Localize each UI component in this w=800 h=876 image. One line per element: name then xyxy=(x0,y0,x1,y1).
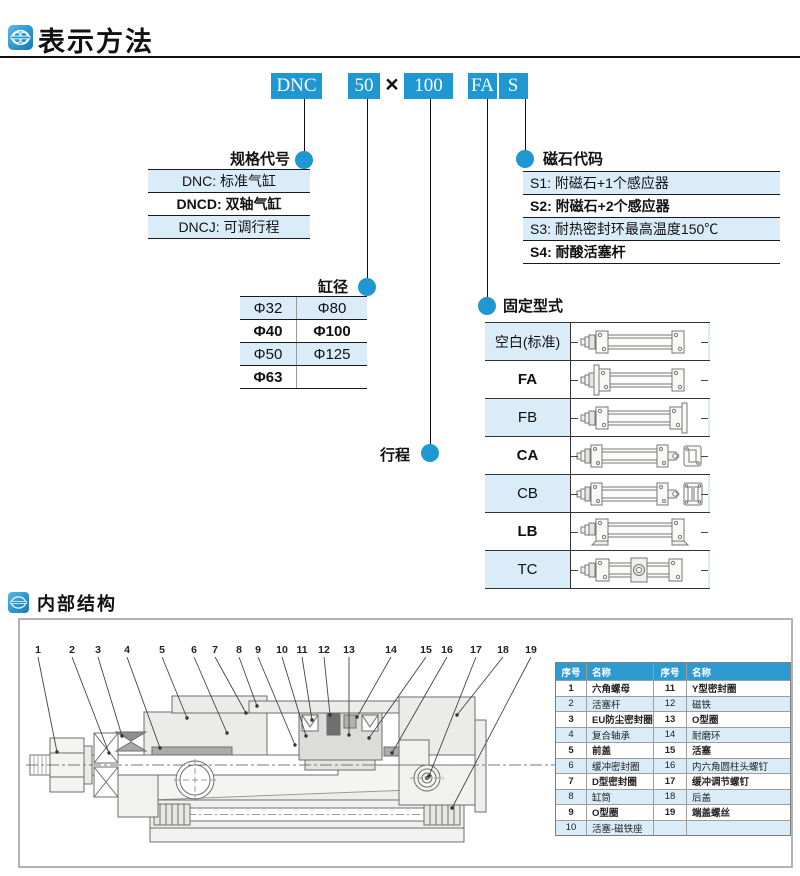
parts-table-header: 序号 名称 序号 名称 xyxy=(556,663,790,680)
parts-table-row: 5前盖15活塞 xyxy=(556,742,790,758)
parts-table-row: 9O型圈19端盖螺丝 xyxy=(556,804,790,820)
parts-table-row: 10活塞-磁铁座 xyxy=(556,820,790,836)
bore-row: Φ40 Φ100 xyxy=(240,320,367,343)
callout-number: 13 xyxy=(343,644,355,656)
trunnion-icon xyxy=(571,551,708,588)
part-name: O型圈 xyxy=(687,712,791,727)
parts-header-no: 序号 xyxy=(556,663,587,680)
part-number: 17 xyxy=(654,774,687,789)
part-number: 8 xyxy=(556,790,587,805)
parts-table-row: 7D型密封圈17缓冲调节螺钉 xyxy=(556,773,790,789)
callout-number: 10 xyxy=(276,644,288,656)
brand-logo-small-icon xyxy=(8,592,29,613)
code-segment-magnet: S xyxy=(499,73,528,99)
part-name: D型密封圈 xyxy=(587,774,654,789)
stroke-dot xyxy=(421,444,439,462)
bore-value: Φ63 xyxy=(240,366,297,388)
double-clevis-icon xyxy=(571,475,708,512)
part-number: 7 xyxy=(556,774,587,789)
bore-row: Φ50 Φ125 xyxy=(240,343,367,366)
bore-row: Φ32 Φ80 xyxy=(240,297,367,320)
part-number: 15 xyxy=(654,743,687,758)
spec-label: 规格代号 xyxy=(230,148,290,169)
header-rule xyxy=(0,56,800,58)
mounting-type-label: CA xyxy=(485,437,571,474)
bore-value: Φ40 xyxy=(240,320,297,342)
bore-dot xyxy=(358,278,376,296)
spec-row: DNC: 标准气缸 xyxy=(148,170,310,193)
bore-value: Φ32 xyxy=(240,297,297,319)
mounting-type-label: FB xyxy=(485,399,571,436)
mounting-row: CA xyxy=(485,437,710,475)
part-name: 活塞 xyxy=(687,743,791,758)
callout-number: 3 xyxy=(95,644,101,656)
mounting-label: 固定型式 xyxy=(503,295,563,316)
mounting-type-label: LB xyxy=(485,513,571,550)
part-number: 1 xyxy=(556,681,587,696)
magnet-label: 磁石代码 xyxy=(543,148,603,169)
mounting-row: FA xyxy=(485,361,710,399)
callout-number: 5 xyxy=(159,644,165,656)
part-name xyxy=(687,821,791,836)
code-segment-series: DNC xyxy=(271,73,322,99)
part-number: 3 xyxy=(556,712,587,727)
part-name: 缓冲密封圈 xyxy=(587,759,654,774)
bore-value xyxy=(297,366,367,388)
bore-value: Φ80 xyxy=(297,297,367,319)
spec-table: DNC: 标准气缸 DNCD: 双轴气缸 DNCJ: 可调行程 xyxy=(148,169,310,239)
part-name: 磁铁 xyxy=(687,697,791,712)
brand-logo-icon xyxy=(8,25,33,50)
mounting-table: 空白(标准) FA xyxy=(485,322,710,589)
callout-number: 8 xyxy=(236,644,242,656)
mounting-type-label: FA xyxy=(485,361,571,398)
mounting-row: FB xyxy=(485,399,710,437)
mounting-type-label: 空白(标准) xyxy=(485,323,571,360)
bore-row: Φ63 xyxy=(240,366,367,389)
bore-table: Φ32 Φ80 Φ40 Φ100 Φ50 Φ125 Φ63 xyxy=(240,296,367,389)
part-name: 内六角圆柱头螺钉 xyxy=(687,759,791,774)
magnet-table: S1: 附磁石+1个感应器 S2: 附磁石+2个感应器 S3: 耐热密封环最高温… xyxy=(523,171,780,264)
mounting-type-label: TC xyxy=(485,551,571,588)
callout-number: 4 xyxy=(124,644,130,656)
parts-table-row: 8缸筒18后盖 xyxy=(556,789,790,805)
magnet-row: S2: 附磁石+2个感应器 xyxy=(523,195,780,218)
parts-header-name: 名称 xyxy=(587,663,654,680)
callout-number: 19 xyxy=(525,644,537,656)
part-number: 6 xyxy=(556,759,587,774)
part-name: 缓冲调节螺钉 xyxy=(687,774,791,789)
mounting-row: 空白(标准) xyxy=(485,323,710,361)
bore-value: Φ125 xyxy=(297,343,367,365)
magnet-row: S4: 耐酸活塞杆 xyxy=(523,241,780,264)
magnet-dot xyxy=(516,150,534,168)
part-number: 12 xyxy=(654,697,687,712)
callout-number: 7 xyxy=(212,644,218,656)
callout-number: 1 xyxy=(35,644,41,656)
callout-number: 16 xyxy=(441,644,453,656)
part-name: 耐磨环 xyxy=(687,728,791,743)
front-flange-icon xyxy=(571,361,708,398)
part-name: EU防尘密封圈 xyxy=(587,712,654,727)
part-name: 六角螺母 xyxy=(587,681,654,696)
mounting-type-label: CB xyxy=(485,475,571,512)
part-number xyxy=(654,821,687,836)
callout-number: 11 xyxy=(296,644,307,656)
callout-number: 14 xyxy=(385,644,397,656)
mounting-row: CB xyxy=(485,475,710,513)
rear-clevis-icon xyxy=(571,437,708,474)
callout-number: 18 xyxy=(497,644,509,656)
code-segment-mounting: FA xyxy=(468,73,497,99)
parts-table-body: 1六角螺母11Y型密封圈2活塞杆12磁铁3EU防尘密封圈13O型圈4复合轴承14… xyxy=(556,680,790,835)
part-number: 19 xyxy=(654,805,687,820)
spec-row: DNCD: 双轴气缸 xyxy=(148,193,310,216)
rear-flange-icon xyxy=(571,399,708,436)
parts-table-row: 4复合轴承14耐磨环 xyxy=(556,727,790,743)
part-number: 13 xyxy=(654,712,687,727)
part-number: 2 xyxy=(556,697,587,712)
part-name: 端盖螺丝 xyxy=(687,805,791,820)
connector-mounting xyxy=(487,99,489,299)
mounting-dot xyxy=(478,297,496,315)
part-number: 10 xyxy=(556,821,587,836)
mounting-row: TC xyxy=(485,551,710,589)
part-name: 活塞杆 xyxy=(587,697,654,712)
foot-mount-icon xyxy=(571,513,708,550)
internal-structure-title: 内部结构 xyxy=(37,590,117,616)
bore-label: 缸径 xyxy=(318,276,348,297)
cylinder-cross-section-drawing: 1 2 3 4 5 6 7 8 9 10 11 12 13 14 15 16 1… xyxy=(22,620,562,864)
part-name: 活塞-磁铁座 xyxy=(587,821,654,836)
bore-value: Φ100 xyxy=(297,320,367,342)
callout-number: 17 xyxy=(470,644,482,656)
part-name: 前盖 xyxy=(587,743,654,758)
part-number: 5 xyxy=(556,743,587,758)
part-name: 复合轴承 xyxy=(587,728,654,743)
part-name: O型圈 xyxy=(587,805,654,820)
mounting-row: LB xyxy=(485,513,710,551)
connector-magnet xyxy=(525,99,527,154)
magnet-row: S1: 附磁石+1个感应器 xyxy=(523,172,780,195)
standard-mount-icon xyxy=(571,323,708,360)
part-name: 缸筒 xyxy=(587,790,654,805)
spec-dot xyxy=(295,151,313,169)
part-number: 4 xyxy=(556,728,587,743)
callout-number: 12 xyxy=(318,644,330,656)
part-number: 18 xyxy=(654,790,687,805)
callout-number: 9 xyxy=(255,644,261,656)
parts-header-no: 序号 xyxy=(654,663,687,680)
stroke-label: 行程 xyxy=(380,444,410,465)
part-name: 后盖 xyxy=(687,790,791,805)
parts-table-row: 2活塞杆12磁铁 xyxy=(556,696,790,712)
parts-table-row: 1六角螺母11Y型密封圈 xyxy=(556,680,790,696)
part-number: 9 xyxy=(556,805,587,820)
connector-stroke xyxy=(430,99,432,447)
code-segment-stroke: 100 xyxy=(404,73,453,99)
part-number: 14 xyxy=(654,728,687,743)
parts-header-name: 名称 xyxy=(687,663,791,680)
code-separator: × xyxy=(380,71,404,98)
part-number: 16 xyxy=(654,759,687,774)
magnet-row: S3: 耐热密封环最高温度150℃ xyxy=(523,218,780,241)
parts-table-row: 6缓冲密封圈16内六角圆柱头螺钉 xyxy=(556,758,790,774)
callout-number: 2 xyxy=(69,644,75,656)
parts-table: 序号 名称 序号 名称 1六角螺母11Y型密封圈2活塞杆12磁铁3EU防尘密封圈… xyxy=(555,662,791,836)
callout-number: 15 xyxy=(420,644,432,656)
spec-row: DNCJ: 可调行程 xyxy=(148,216,310,239)
callout-number: 6 xyxy=(191,644,197,656)
code-segment-bore: 50 xyxy=(348,73,380,99)
connector-spec xyxy=(304,99,306,154)
part-name: Y型密封圈 xyxy=(687,681,791,696)
page-title: 表示方法 xyxy=(38,20,154,59)
connector-bore xyxy=(367,99,369,281)
bore-value: Φ50 xyxy=(240,343,297,365)
internal-structure-panel: 1 2 3 4 5 6 7 8 9 10 11 12 13 14 15 16 1… xyxy=(18,618,793,868)
catalog-page: 表示方法 DNC 50 × 100 FA S 规格代号 磁石代码 缸径 固定型式… xyxy=(0,0,800,876)
parts-table-row: 3EU防尘密封圈13O型圈 xyxy=(556,711,790,727)
part-number: 11 xyxy=(654,681,687,696)
